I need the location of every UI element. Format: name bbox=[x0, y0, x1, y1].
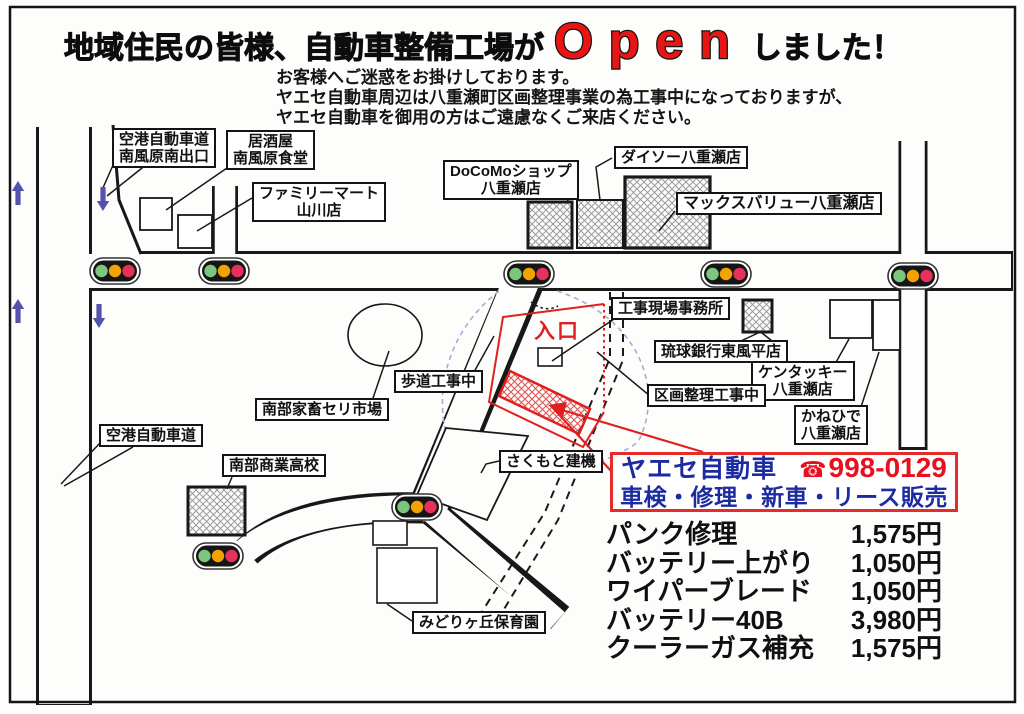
phone-icon: ☎ bbox=[799, 457, 826, 482]
building-kfc bbox=[830, 300, 872, 338]
map-label-cattle-market: 南部家畜セリ市場 bbox=[255, 398, 389, 421]
map-label-midorigaoka: みどりヶ丘保育園 bbox=[412, 611, 546, 634]
shop-services: 車検・修理・新車・リース販売 bbox=[620, 484, 948, 510]
map-label-airport-exit: 空港自動車道 南風原南出口 bbox=[112, 128, 216, 168]
traffic-light-icon bbox=[392, 494, 442, 520]
price-row: ワイパーブレード 1,050円 bbox=[606, 577, 942, 606]
direction-arrow-up-icon bbox=[12, 299, 24, 323]
entrance-label: 入口 bbox=[534, 315, 580, 345]
building-kanehide bbox=[873, 300, 900, 350]
price-row: バッテリー上がり 1,050円 bbox=[606, 549, 942, 578]
map-label-ryukyu-bank: 琉球銀行東風平店 bbox=[654, 340, 788, 363]
map-label-sakumoto: さくもと建機 bbox=[499, 450, 603, 473]
map-label-hodou-kouji: 歩道工事中 bbox=[394, 370, 483, 393]
page-title: 地域住民の皆様、自動車整備工場がOpenしました！ bbox=[64, 12, 1020, 70]
traffic-light-icon bbox=[193, 543, 243, 569]
traffic-light-icon bbox=[504, 261, 554, 287]
traffic-light-icon bbox=[701, 261, 751, 287]
traffic-light-icon bbox=[888, 263, 938, 289]
price-value: 1,050円 bbox=[851, 577, 942, 606]
price-item: クーラーガス補充 bbox=[606, 634, 814, 663]
map-label-docomo: DoCoMoショップ 八重瀬店 bbox=[443, 160, 579, 200]
price-row: バッテリー40B 3,980円 bbox=[606, 606, 942, 635]
map-label-airport-road: 空港自動車道 bbox=[99, 424, 203, 447]
building-cattle-market-circle bbox=[348, 304, 422, 366]
price-list: パンク修理 1,575円 バッテリー上がり 1,050円 ワイパーブレード 1,… bbox=[606, 520, 942, 663]
building-familymart bbox=[178, 215, 212, 248]
building-izakaya bbox=[140, 198, 172, 230]
price-item: パンク修理 bbox=[606, 520, 737, 549]
building-yaese-auto bbox=[499, 371, 590, 434]
building-nanbu-school bbox=[188, 487, 245, 535]
direction-arrow-down-icon bbox=[93, 304, 105, 328]
traffic-light-icon bbox=[90, 258, 140, 284]
notice-paragraph: お客様へご迷惑をお掛けしております。 ヤエセ自動車周辺は八重瀬町区画整理事業の為… bbox=[276, 68, 976, 128]
traffic-light-icon bbox=[199, 258, 249, 284]
map-label-site-office: 工事現場事務所 bbox=[611, 297, 730, 320]
shop-name: ヤエセ自動車 bbox=[621, 455, 777, 483]
map-label-familymart: ファミリーマート 山川店 bbox=[252, 182, 386, 222]
price-value: 1,575円 bbox=[851, 520, 942, 549]
title-open-word: Open bbox=[544, 13, 752, 69]
price-value: 3,980円 bbox=[851, 606, 942, 635]
price-value: 1,575円 bbox=[851, 634, 942, 663]
price-row: クーラーガス補充 1,575円 bbox=[606, 634, 942, 663]
direction-arrow-up-icon bbox=[12, 181, 24, 205]
title-prefix: 地域住民の皆様、自動車整備工場が bbox=[64, 32, 544, 65]
building-hoikuen-small bbox=[373, 521, 407, 545]
map-label-izakaya: 居酒屋 南風原食堂 bbox=[226, 130, 315, 170]
price-value: 1,050円 bbox=[851, 549, 942, 578]
map-label-kukaku-kouji: 区画整理工事中 bbox=[647, 384, 766, 407]
map-label-maxvalu: マックスバリュー八重瀬店 bbox=[676, 192, 882, 215]
map-label-nanbu-school: 南部商業高校 bbox=[222, 454, 326, 477]
building-docomo bbox=[528, 202, 572, 248]
price-item: ワイパーブレード bbox=[606, 577, 812, 606]
map-label-kanehide: かねひで 八重瀬店 bbox=[794, 405, 868, 445]
phone-number: 998-0129 bbox=[829, 452, 947, 483]
price-row: パンク修理 1,575円 bbox=[606, 520, 942, 549]
map-label-daiso: ダイソー八重瀬店 bbox=[614, 146, 748, 169]
building-daiso bbox=[577, 200, 623, 248]
price-item: バッテリー40B bbox=[606, 606, 784, 635]
shop-info-box: ヤエセ自動車 ☎998-0129 車検・修理・新車・リース販売 bbox=[610, 452, 958, 512]
building-ryukyu-bank bbox=[743, 300, 772, 332]
shop-phone: ☎998-0129 bbox=[799, 454, 947, 484]
title-suffix: しました！ bbox=[752, 32, 902, 65]
map-label-kfc: ケンタッキー 八重瀬店 bbox=[751, 361, 855, 401]
building-hoikuen-large bbox=[377, 548, 437, 603]
flyer-page: 地域住民の皆様、自動車整備工場がOpenしました！ お客様へご迷惑をお掛けしてお… bbox=[0, 0, 1024, 714]
price-item: バッテリー上がり bbox=[606, 549, 814, 578]
